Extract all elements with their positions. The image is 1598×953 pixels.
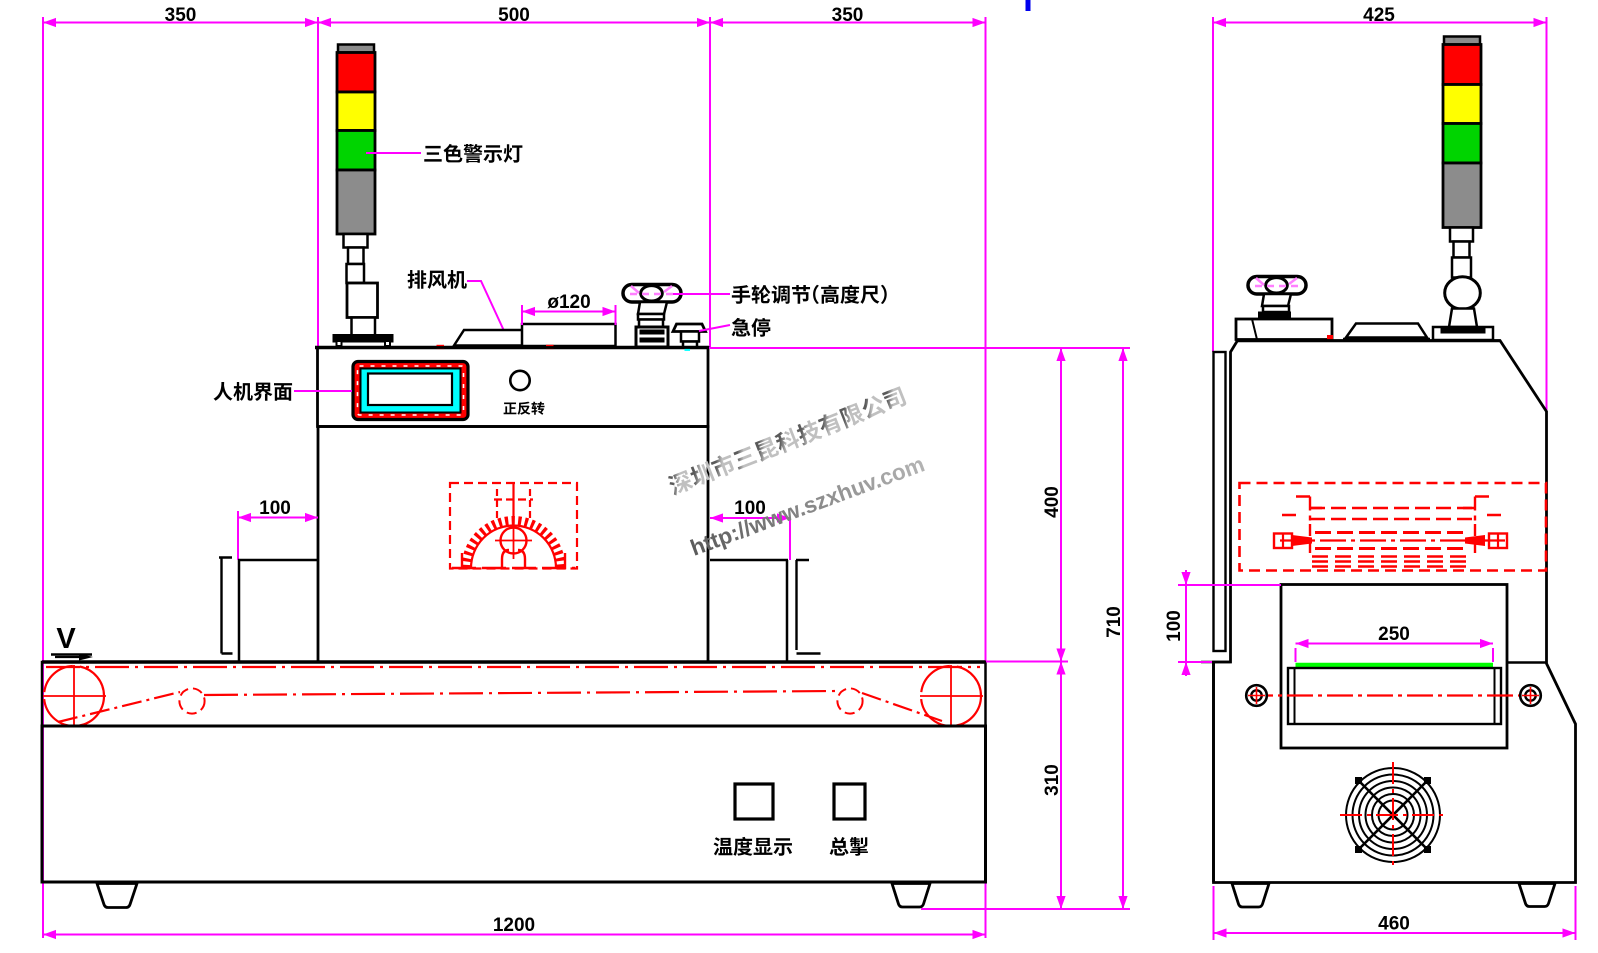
- svg-text:100: 100: [1164, 610, 1185, 642]
- svg-text:500: 500: [498, 5, 530, 26]
- svg-text:350: 350: [832, 5, 864, 26]
- svg-text:250: 250: [1378, 624, 1410, 645]
- svg-text:400: 400: [1042, 486, 1063, 518]
- svg-text:710: 710: [1104, 606, 1125, 638]
- svg-text:V: V: [56, 623, 76, 655]
- svg-text:ø120: ø120: [547, 292, 590, 313]
- svg-text:100: 100: [259, 498, 291, 519]
- svg-text:310: 310: [1042, 764, 1063, 796]
- svg-text:350: 350: [165, 5, 197, 26]
- svg-text:460: 460: [1378, 914, 1410, 935]
- svg-text:1200: 1200: [493, 915, 535, 936]
- svg-text:425: 425: [1363, 5, 1395, 26]
